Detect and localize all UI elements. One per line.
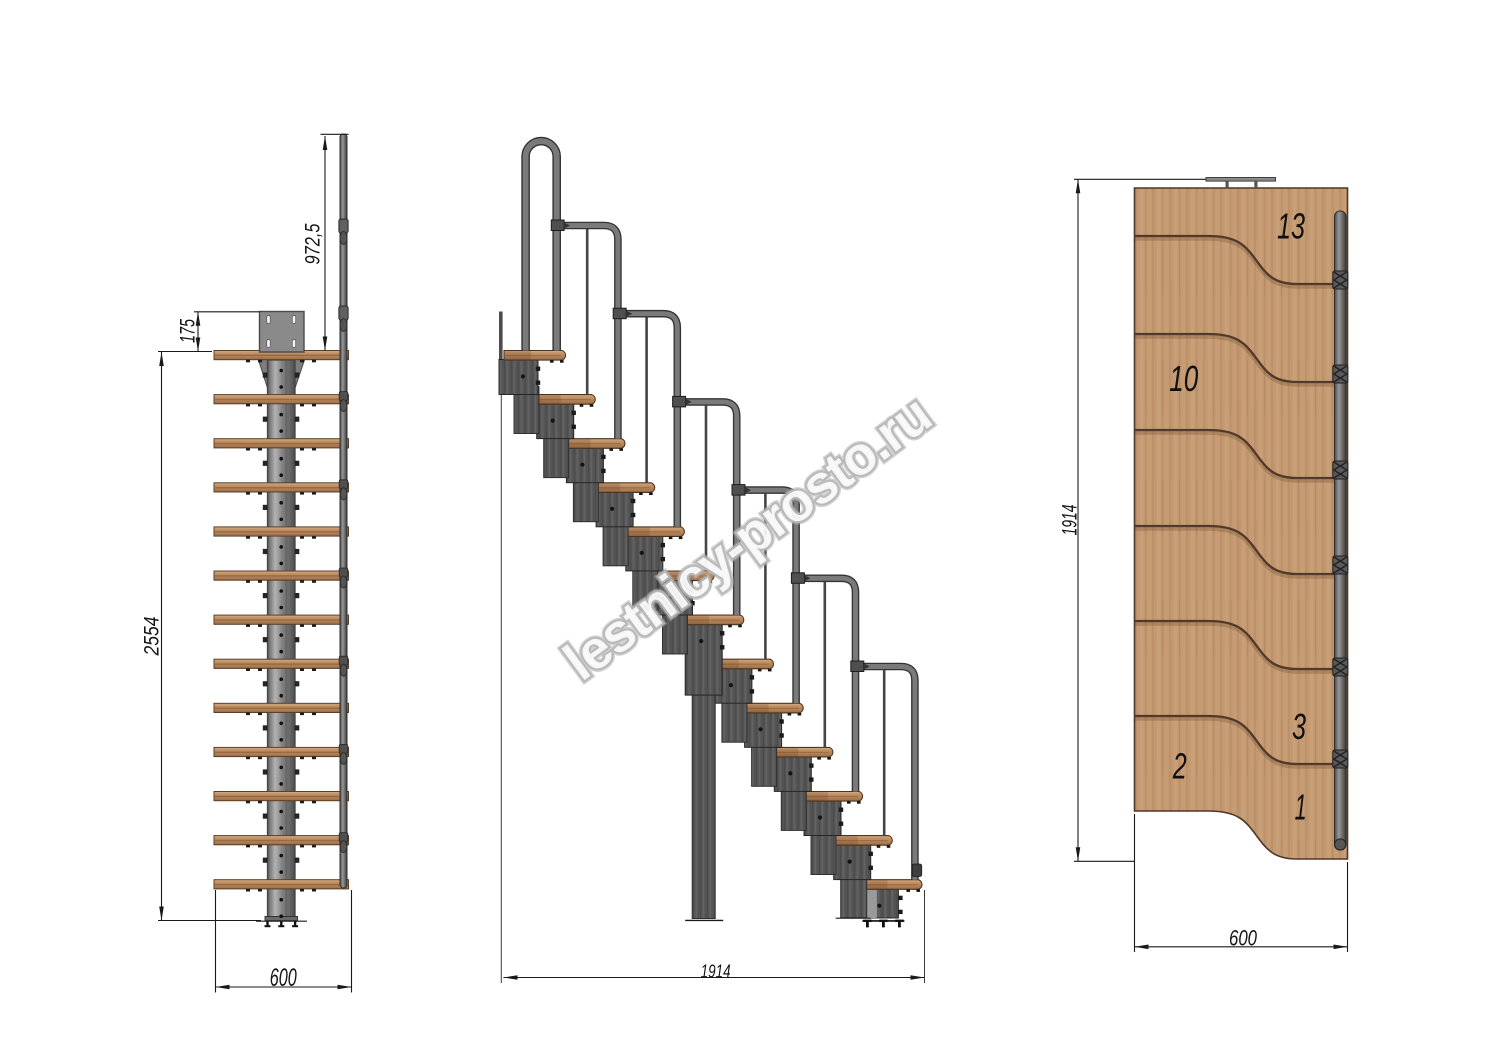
svg-text:3: 3: [1292, 706, 1306, 747]
svg-text:1: 1: [1295, 787, 1307, 828]
svg-text:1914: 1914: [701, 960, 731, 981]
svg-text:972,5: 972,5: [302, 223, 325, 264]
svg-text:13: 13: [1277, 206, 1305, 247]
svg-text:175: 175: [177, 319, 200, 343]
svg-text:2: 2: [1172, 746, 1187, 787]
svg-text:10: 10: [1169, 358, 1198, 399]
svg-text:600: 600: [270, 964, 297, 992]
svg-text:2554: 2554: [141, 617, 164, 657]
svg-text:1914: 1914: [1059, 505, 1082, 536]
svg-text:600: 600: [1229, 926, 1258, 951]
